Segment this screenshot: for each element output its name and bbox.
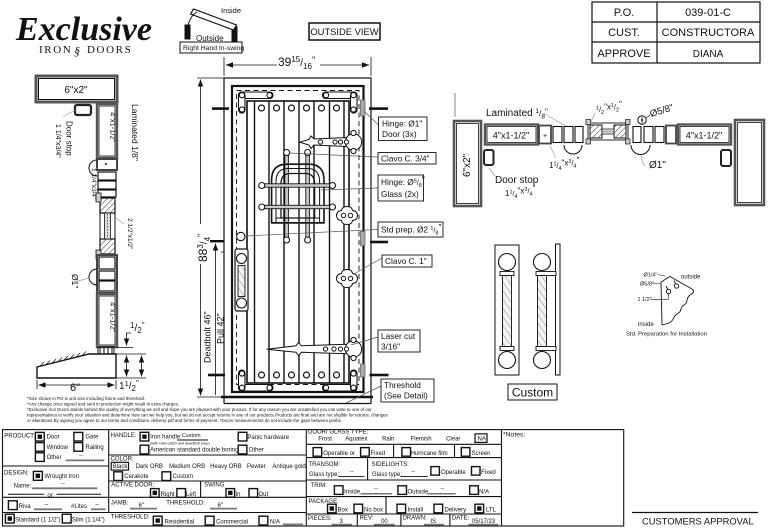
- svg-text:Delivery: Delivery: [445, 508, 467, 514]
- svg-text:Outside: Outside: [408, 489, 429, 495]
- svg-text:Glass (2x): Glass (2x): [381, 189, 419, 199]
- svg-text:P.O.: P.O.: [614, 7, 635, 19]
- svg-text:Ø1": Ø1": [649, 160, 666, 171]
- svg-text:Right: Right: [161, 492, 175, 498]
- svg-text:REV:: REV:: [360, 516, 374, 522]
- svg-text:LTL: LTL: [486, 508, 497, 514]
- svg-text:Railing: Railing: [85, 445, 103, 451]
- svg-text:Inside: Inside: [221, 6, 241, 15]
- svg-text:Hurricane film: Hurricane film: [411, 451, 448, 457]
- svg-text:(with rollercatch and deadbolt: (with rollercatch and deadbolt prep): [150, 442, 210, 446]
- svg-text:N/A: N/A: [479, 489, 489, 495]
- svg-text:--: --: [61, 482, 65, 488]
- svg-text:Black: Black: [113, 464, 129, 470]
- svg-text:Gate: Gate: [85, 435, 99, 441]
- svg-text:THRESHOLD:: THRESHOLD:: [166, 501, 205, 507]
- svg-text:PIECES:: PIECES:: [308, 516, 332, 522]
- svg-text:Flemish: Flemish: [411, 437, 432, 443]
- svg-text:Window: Window: [47, 445, 69, 451]
- svg-text:inside: inside: [638, 322, 654, 328]
- svg-text:Left: Left: [186, 492, 196, 498]
- svg-text:Custom: Custom: [173, 474, 194, 480]
- svg-text:Fixed: Fixed: [371, 451, 386, 457]
- svg-text:*Size shown in PO is unit size: *Size shown in PO is unit size including…: [27, 396, 145, 401]
- svg-text:§: §: [74, 44, 80, 58]
- svg-text:--: --: [441, 487, 445, 493]
- svg-text:--: --: [411, 470, 415, 476]
- svg-text:N/A: N/A: [270, 520, 280, 526]
- svg-text:Ø5/8": Ø5/8": [640, 282, 654, 288]
- svg-text:Right Hand In-swing: Right Hand In-swing: [183, 45, 244, 52]
- svg-text:representatives to verify your: representatives to verify your situation…: [27, 413, 389, 418]
- svg-text:Rain: Rain: [382, 437, 394, 443]
- svg-text:Screen: Screen: [472, 451, 491, 457]
- svg-text:*Notes:: *Notes:: [503, 432, 525, 439]
- svg-text:JAMB:: JAMB:: [111, 501, 129, 507]
- svg-text:Iron handle:: Iron handle:: [150, 434, 182, 440]
- svg-text:IRON: IRON: [39, 44, 72, 56]
- svg-text:Deadbolt 46": Deadbolt 46": [203, 311, 213, 363]
- svg-text:American standard double borin: American standard double boring: [150, 447, 238, 453]
- svg-text:Ø1/4": Ø1/4": [644, 273, 658, 279]
- svg-text:DATE:: DATE:: [452, 516, 470, 522]
- svg-text:Name:: Name:: [14, 484, 32, 490]
- svg-text:Riva: Riva: [19, 504, 32, 510]
- svg-text:--: --: [95, 502, 99, 508]
- svg-text:Inside: Inside: [344, 489, 361, 495]
- svg-text:(See Detail): (See Detail): [384, 391, 428, 401]
- svg-text:4"x1-1/2": 4"x1-1/2": [109, 112, 118, 143]
- svg-text:Frost: Frost: [318, 437, 332, 443]
- svg-text:PRODUCT:: PRODUCT:: [4, 434, 35, 440]
- svg-text:--: --: [374, 487, 378, 493]
- svg-text:Operable or: Operable or: [323, 451, 355, 457]
- svg-text:CUST.: CUST.: [608, 27, 640, 39]
- svg-text:039-01-C: 039-01-C: [685, 7, 731, 19]
- svg-text:In: In: [236, 492, 241, 498]
- svg-text:Clavo C. 1": Clavo C. 1": [385, 256, 427, 266]
- svg-text:OUTSIDE VIEW: OUTSIDE VIEW: [310, 26, 378, 37]
- svg-text:1 1/4"x3/4": 1 1/4"x3/4": [54, 124, 61, 158]
- svg-text:Pewter: Pewter: [247, 464, 266, 470]
- svg-text:Custom: Custom: [182, 433, 201, 439]
- svg-text:Glass type:: Glass type:: [309, 472, 339, 478]
- svg-text:Antique gold: Antique gold: [272, 464, 305, 470]
- svg-text:4"x1-1/2": 4"x1-1/2": [686, 131, 722, 141]
- svg-text:Commercial: Commercial: [216, 520, 248, 526]
- svg-text:6": 6": [70, 382, 80, 394]
- svg-text:NA: NA: [478, 436, 486, 442]
- svg-text:Other: Other: [47, 455, 62, 461]
- svg-text:Door stop: Door stop: [65, 121, 74, 156]
- svg-text:*Exclusive Iron Doors stands b: *Exclusive Iron Doors stands behind the …: [27, 407, 372, 412]
- svg-text:No box: No box: [364, 508, 383, 514]
- svg-text:--: --: [79, 454, 83, 460]
- svg-text:Heavy ORB: Heavy ORB: [210, 464, 242, 470]
- svg-text:*Any change once signed and se: *Any change once signed and sent to prod…: [27, 402, 179, 407]
- svg-text:4"x1-1/2": 4"x1-1/2": [493, 131, 529, 141]
- svg-text:CONSTRUCTORA: CONSTRUCTORA: [662, 27, 755, 39]
- svg-text:6"x2": 6"x2": [462, 153, 473, 177]
- svg-text:Install: Install: [408, 508, 424, 514]
- svg-text:Box: Box: [338, 508, 348, 514]
- svg-text:Threshold: Threshold: [384, 380, 421, 390]
- svg-text:Panic hardware: Panic hardware: [247, 435, 289, 441]
- svg-text:Cerakote: Cerakote: [124, 474, 149, 480]
- svg-text:Residential: Residential: [165, 520, 195, 526]
- svg-text:SIDELIGHTS:: SIDELIGHTS:: [372, 462, 410, 468]
- svg-text:CUSTOMERS APPROVAL: CUSTOMERS APPROVAL: [642, 516, 754, 527]
- svg-text:3/16": 3/16": [381, 342, 400, 352]
- svg-text:Aquatex: Aquatex: [345, 437, 367, 443]
- svg-text:DIANA: DIANA: [693, 49, 724, 60]
- svg-text:6"x2": 6"x2": [64, 85, 88, 96]
- svg-text:Out: Out: [259, 492, 269, 498]
- svg-text:Clear: Clear: [446, 437, 460, 443]
- svg-text:Clavo C. 3/4": Clavo C. 3/4": [381, 153, 430, 163]
- svg-text:Laser cut: Laser cut: [381, 331, 416, 341]
- svg-text:+: +: [543, 133, 547, 140]
- svg-text:DRAWN:: DRAWN:: [403, 516, 427, 522]
- svg-text:Slim (1 1/4"): Slim (1 1/4"): [72, 518, 105, 524]
- svg-text:Ø1": Ø1": [70, 274, 80, 288]
- svg-text:HANDLE:: HANDLE:: [111, 433, 137, 439]
- svg-text:DOORS: DOORS: [87, 44, 132, 56]
- svg-text:Exclusive: Exclusive: [15, 11, 152, 48]
- svg-text:DESIGN:: DESIGN:: [4, 470, 29, 476]
- svg-text:2 1/2"x1/2": 2 1/2"x1/2": [126, 218, 133, 250]
- svg-text:TRANSOM:: TRANSOM:: [309, 462, 341, 468]
- svg-text:Hinge: Ø1": Hinge: Ø1": [382, 119, 422, 129]
- svg-text:Door (3x): Door (3x): [382, 129, 417, 139]
- svg-text:Laminated 1/8": Laminated 1/8": [130, 104, 140, 161]
- svg-text:Fixed: Fixed: [481, 470, 496, 476]
- svg-text:4"x1-1/2": 4"x1-1/2": [109, 302, 118, 333]
- svg-text:Custom: Custom: [512, 386, 553, 400]
- svg-text:Std. Preparation for Installat: Std. Preparation for Installation: [626, 332, 707, 338]
- svg-text:APPROVE: APPROVE: [597, 48, 650, 60]
- svg-text:or alterations.By signing you: or alterations.By signing you agree to o…: [27, 418, 342, 423]
- svg-text:--: --: [45, 502, 49, 508]
- svg-text:Dark ORB: Dark ORB: [136, 464, 163, 470]
- svg-text:ACTIVE DOOR:: ACTIVE DOOR:: [111, 483, 154, 489]
- svg-text:--: --: [350, 470, 354, 476]
- svg-text:Medium ORB: Medium ORB: [169, 464, 205, 470]
- svg-text:Door: Door: [47, 435, 60, 441]
- svg-text:#Lites: #Lites: [71, 504, 87, 510]
- svg-text:Standard (1 1/2"): Standard (1 1/2"): [15, 518, 61, 524]
- svg-text:1 1/2": 1 1/2": [638, 297, 652, 303]
- svg-text:THRESHOLD:: THRESHOLD:: [111, 515, 150, 521]
- svg-text:SWING: SWING: [204, 483, 225, 489]
- svg-text:DOOR/ GLASS TYPE:: DOOR/ GLASS TYPE:: [308, 430, 369, 436]
- svg-text:Operable: Operable: [441, 470, 466, 476]
- svg-text:Wrought Iron: Wrought Iron: [44, 474, 79, 480]
- svg-text:TRIM:: TRIM:: [311, 483, 328, 489]
- svg-text:Glass type:: Glass type:: [372, 472, 402, 478]
- svg-text:Other: Other: [249, 447, 264, 453]
- svg-text:outside: outside: [681, 275, 701, 281]
- svg-text:or: or: [47, 493, 52, 499]
